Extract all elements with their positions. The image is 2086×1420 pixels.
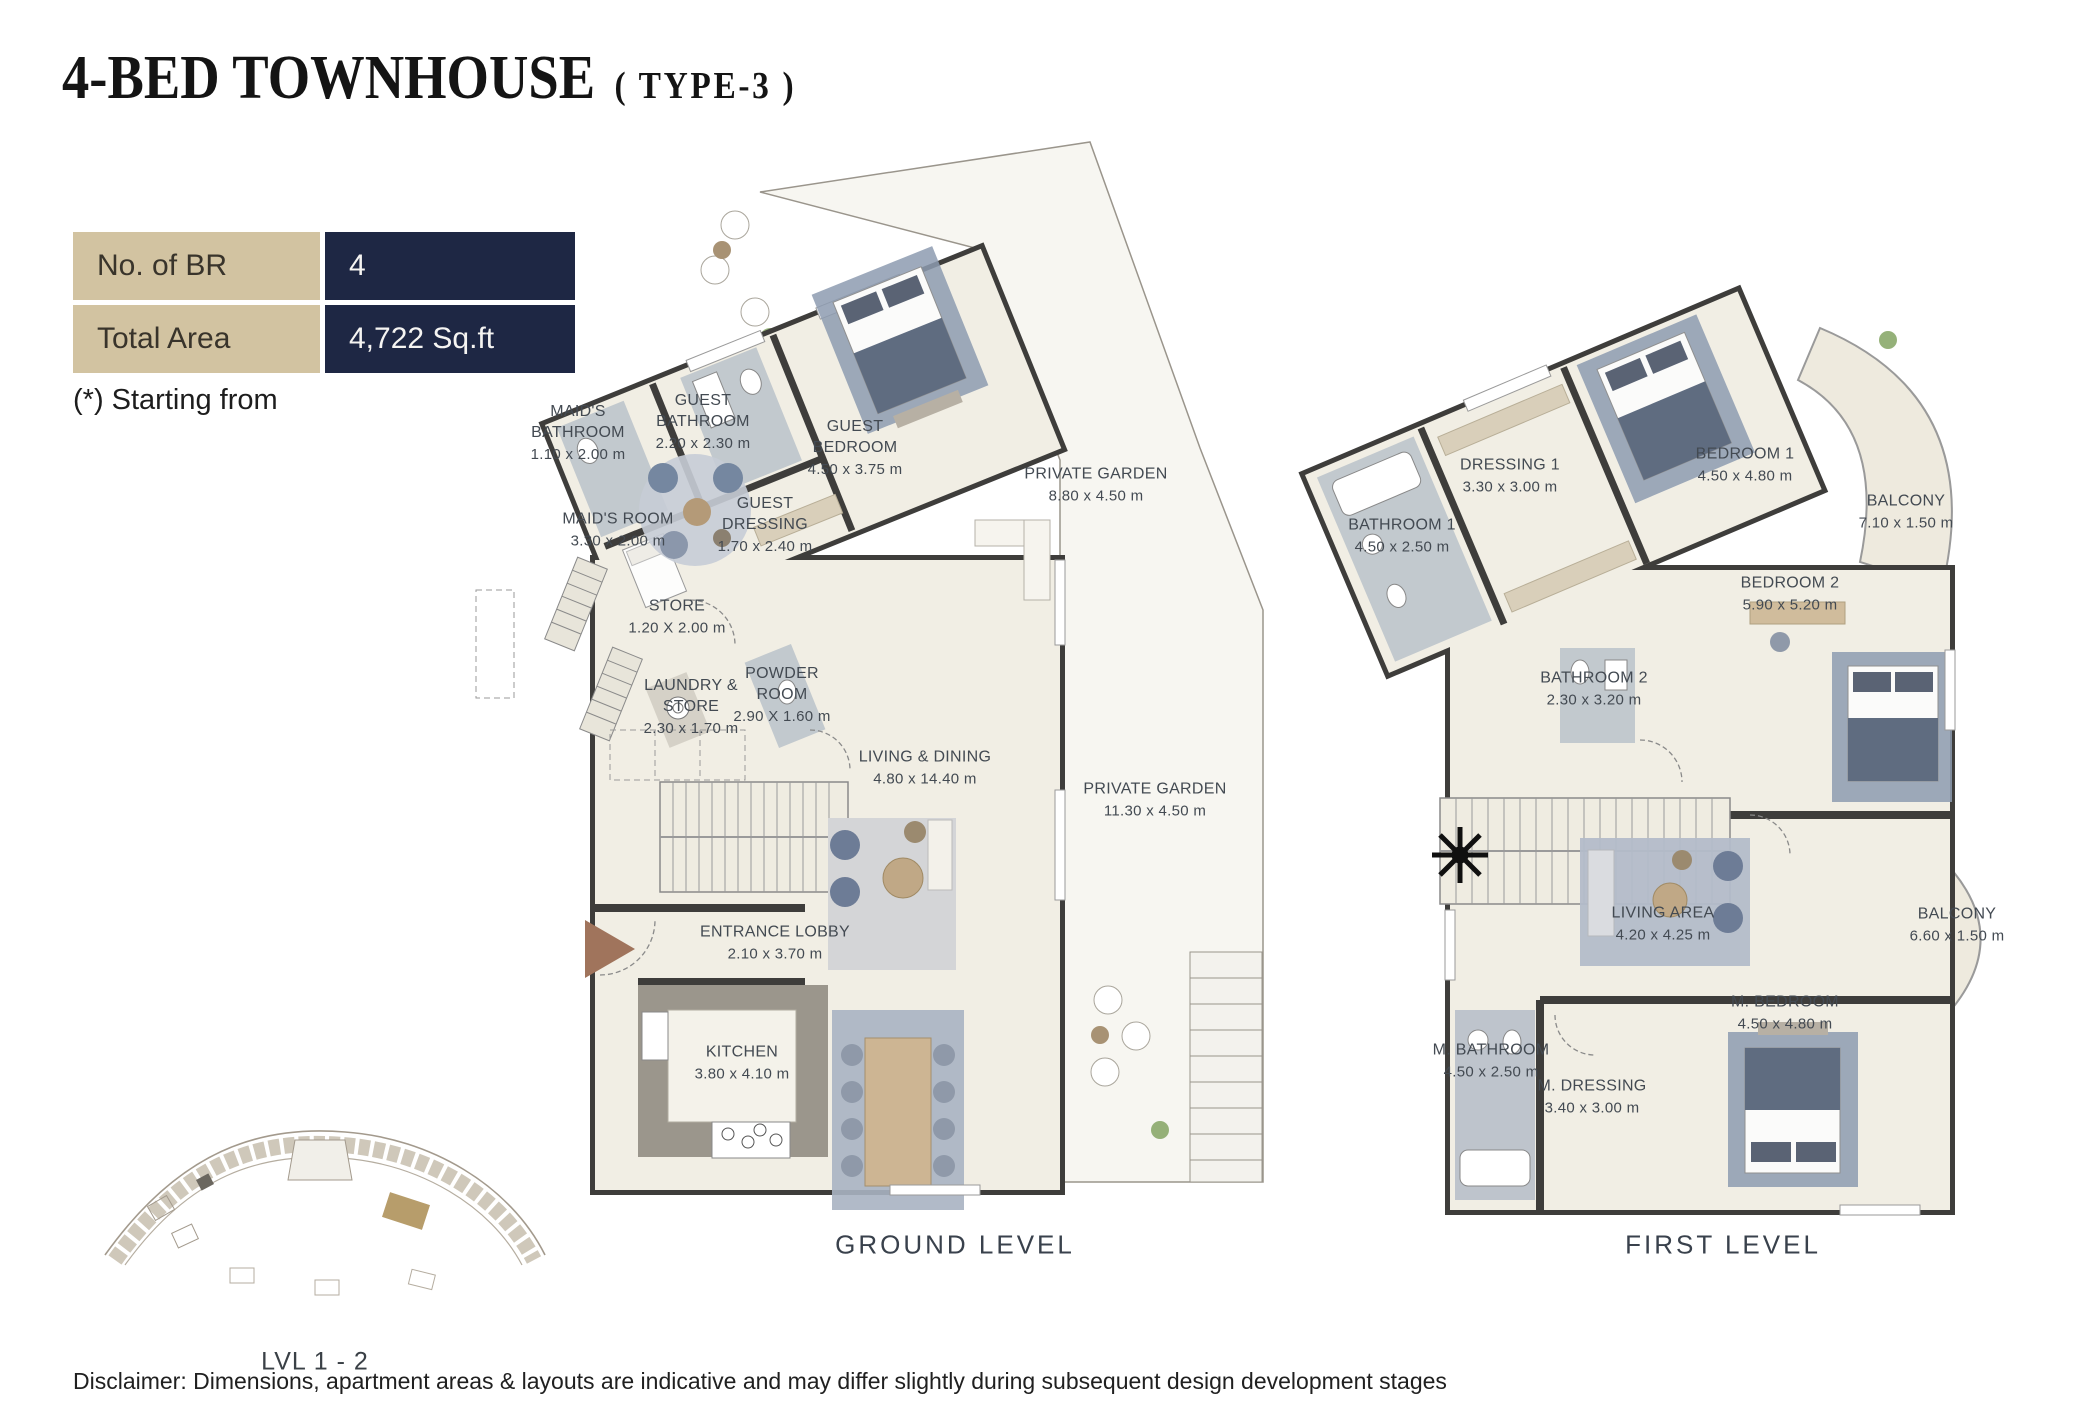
plant-icon bbox=[1432, 827, 1488, 883]
ground-level-drawing bbox=[460, 130, 1300, 1250]
brochure-page: 4-BED TOWNHOUSE ( TYPE-3 ) No. of BR 4 T… bbox=[0, 0, 2086, 1420]
info-label-bedrooms: No. of BR bbox=[73, 232, 320, 300]
site-unit bbox=[408, 1269, 435, 1289]
site-unit bbox=[172, 1224, 199, 1248]
starting-from-note: (*) Starting from bbox=[73, 384, 278, 417]
room-label-bathroom-1: BATHROOM 1 4.50 x 2.50 m bbox=[1322, 515, 1482, 556]
projection-box bbox=[476, 590, 514, 698]
room-label-m-dressing: M. DRESSING 3.40 x 3.00 m bbox=[1512, 1076, 1672, 1117]
highlighted-unit bbox=[382, 1192, 430, 1230]
plant-icon bbox=[1151, 1121, 1169, 1139]
room-label-entrance-lobby: ENTRANCE LOBBY 2.10 x 3.70 m bbox=[660, 922, 890, 963]
page-title-main: 4-BED TOWNHOUSE bbox=[62, 44, 595, 112]
site-mini-plan bbox=[90, 1080, 570, 1340]
room-label-bathroom-2: BATHROOM 2 2.30 x 3.20 m bbox=[1529, 668, 1659, 709]
page-title-type: ( TYPE-3 ) bbox=[614, 65, 796, 107]
page-title: 4-BED TOWNHOUSE ( TYPE-3 ) bbox=[62, 43, 796, 114]
room-label-bedroom-2: BEDROOM 2 5.90 x 5.20 m bbox=[1715, 573, 1865, 614]
ground-level-plan: MAID'S BATHROOM 1.10 x 2.00 m GUEST BATH… bbox=[460, 130, 1300, 1250]
room-label-maids-bathroom: MAID'S BATHROOM 1.10 x 2.00 m bbox=[513, 402, 643, 464]
first-level-plan: DRESSING 1 3.30 x 3.00 m BEDROOM 1 4.50 … bbox=[1280, 270, 2040, 1230]
bathtub-icon bbox=[1460, 1150, 1530, 1186]
room-label-guest-bedroom: GUEST BEDROOM 4.50 x 3.75 m bbox=[800, 417, 910, 479]
site-plan-drawing bbox=[90, 1080, 570, 1340]
room-label-kitchen: KITCHEN 3.80 x 4.10 m bbox=[662, 1042, 822, 1083]
room-label-living-dining: LIVING & DINING 4.80 x 14.40 m bbox=[810, 747, 1040, 788]
site-unit bbox=[230, 1268, 254, 1283]
info-label-area: Total Area bbox=[73, 305, 320, 373]
room-label-m-bedroom: M. BEDROOM 4.50 x 4.80 m bbox=[1705, 992, 1865, 1033]
room-label-balcony-1: BALCONY 7.10 x 1.50 m bbox=[1841, 491, 1971, 532]
stove-icon bbox=[712, 1122, 790, 1158]
first-level-caption: FIRST LEVEL bbox=[1625, 1230, 1821, 1261]
room-label-guest-bathroom: GUEST BATHROOM 2.20 x 2.30 m bbox=[643, 391, 763, 453]
garden-stair-hatch bbox=[1190, 952, 1262, 1182]
room-label-private-garden-1: PRIVATE GARDEN 8.80 x 4.50 m bbox=[981, 464, 1211, 505]
dining-set bbox=[832, 1010, 964, 1210]
room-label-bedroom-1: BEDROOM 1 4.50 x 4.80 m bbox=[1670, 444, 1820, 485]
room-label-powder-room: POWDER ROOM 2.90 X 1.60 m bbox=[727, 664, 837, 726]
site-unit bbox=[315, 1280, 339, 1295]
room-label-balcony-2: BALCONY 6.60 x 1.50 m bbox=[1902, 904, 2012, 945]
room-label-guest-dressing: GUEST DRESSING 1.70 x 2.40 m bbox=[710, 494, 820, 556]
chair bbox=[1770, 632, 1790, 652]
living-area-set bbox=[1580, 838, 1750, 966]
central-block bbox=[288, 1140, 352, 1180]
master-bed bbox=[1728, 1022, 1858, 1187]
room-label-living-area: LIVING AREA 4.20 x 4.25 m bbox=[1588, 903, 1738, 944]
room-label-dressing-1: DRESSING 1 3.30 x 3.00 m bbox=[1435, 455, 1585, 496]
plant-icon bbox=[1879, 331, 1897, 349]
balcony-1 bbox=[1798, 328, 1952, 588]
room-label-private-garden-2: PRIVATE GARDEN 11.30 x 4.50 m bbox=[1040, 779, 1270, 820]
room-label-store: STORE 1.20 X 2.00 m bbox=[602, 596, 752, 637]
room-label-maids-room: MAID'S ROOM 3.30 x 2.00 m bbox=[533, 509, 703, 550]
ground-level-caption: GROUND LEVEL bbox=[835, 1230, 1075, 1261]
disclaimer-text: Disclaimer: Dimensions, apartment areas … bbox=[73, 1368, 1447, 1395]
